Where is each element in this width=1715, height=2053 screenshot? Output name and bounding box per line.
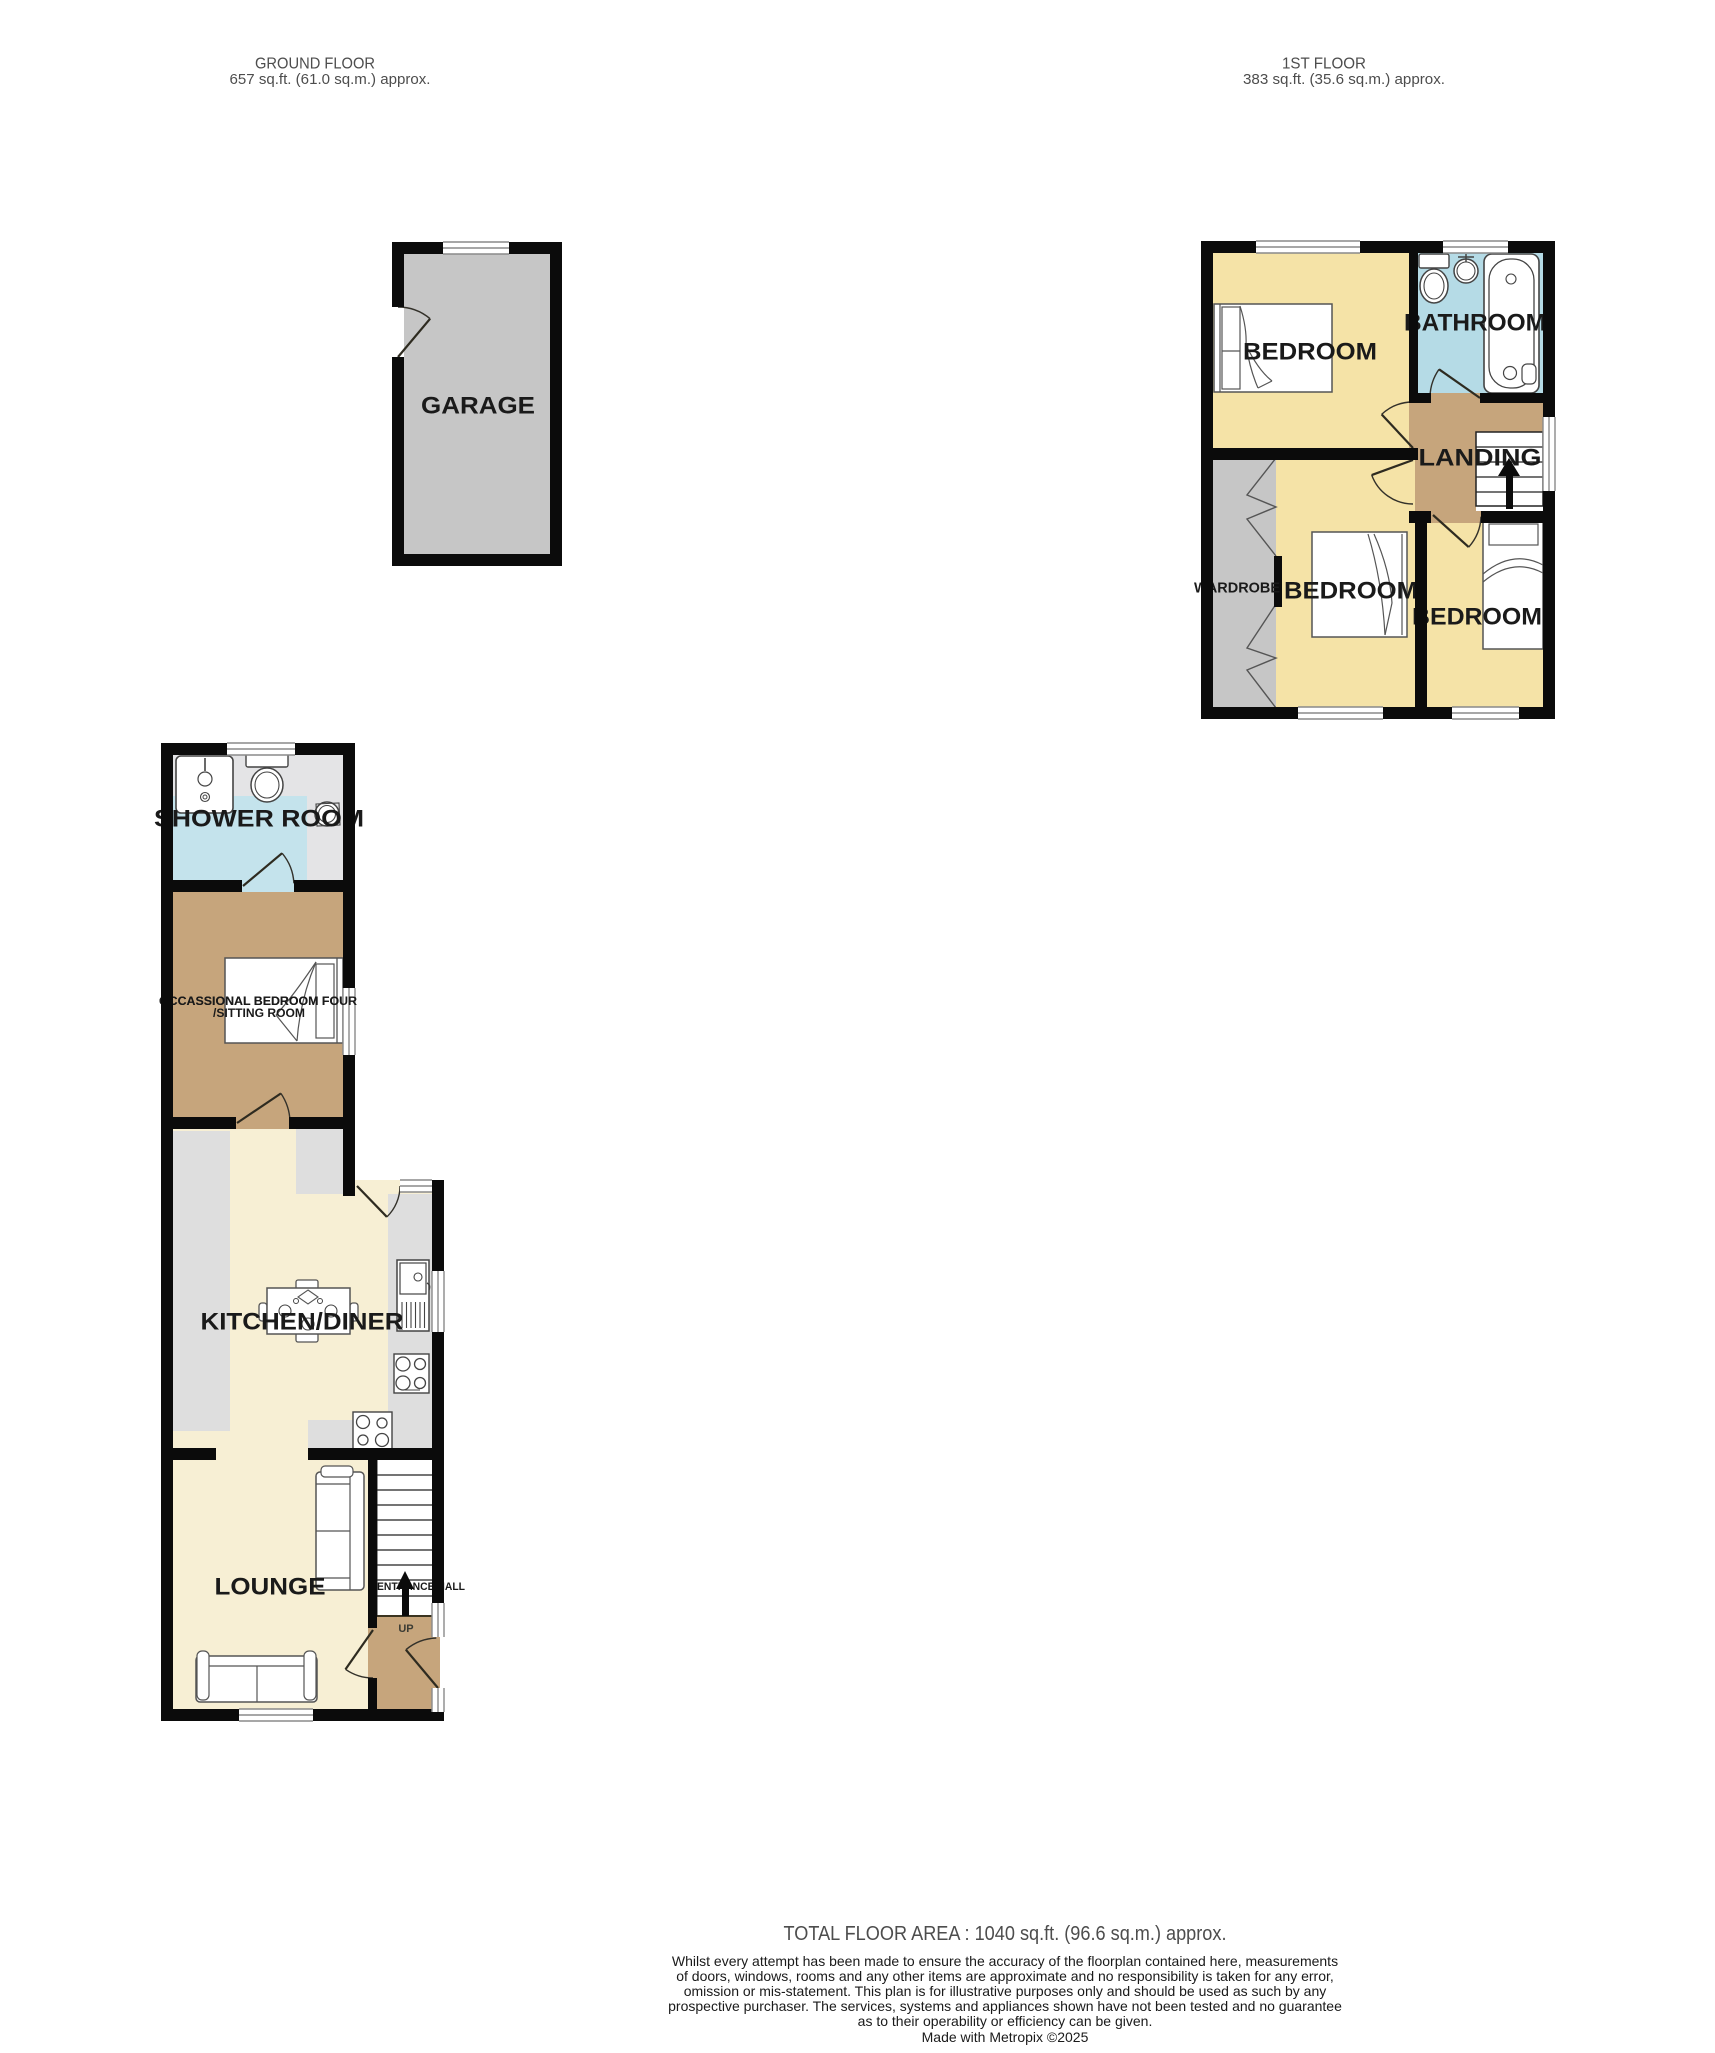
svg-text:Whilst every attempt has been: Whilst every attempt has been made to en… <box>672 1953 1338 1969</box>
svg-text:of doors, windows, rooms and a: of doors, windows, rooms and any other i… <box>676 1968 1334 1984</box>
svg-text:/SITTING ROOM: /SITTING ROOM <box>213 1006 305 1020</box>
svg-text:prospective purchaser. The ser: prospective purchaser. The services, sys… <box>668 1998 1342 2014</box>
svg-text:GROUND FLOOR: GROUND FLOOR <box>255 56 375 73</box>
svg-text:BEDROOM: BEDROOM <box>1243 339 1377 366</box>
svg-text:omission or mis-statement. Thi: omission or mis-statement. This plan is … <box>684 1983 1327 1999</box>
svg-text:GARAGE: GARAGE <box>421 393 535 420</box>
svg-text:OCCASSIONAL BEDROOM FOUR: OCCASSIONAL BEDROOM FOUR <box>159 994 357 1008</box>
svg-text:SHOWER ROOM: SHOWER ROOM <box>154 806 364 833</box>
svg-text:BATHROOM: BATHROOM <box>1404 310 1546 337</box>
svg-text:LANDING: LANDING <box>1419 445 1542 472</box>
svg-text:LOUNGE: LOUNGE <box>215 1574 326 1601</box>
svg-text:TOTAL FLOOR AREA : 1040 sq.ft.: TOTAL FLOOR AREA : 1040 sq.ft. (96.6 sq.… <box>784 1923 1227 1945</box>
svg-text:Made with Metropix ©2025: Made with Metropix ©2025 <box>922 2029 1089 2045</box>
svg-text:383 sq.ft. (35.6 sq.m.) approx: 383 sq.ft. (35.6 sq.m.) approx. <box>1243 72 1445 88</box>
svg-text:BEDROOM: BEDROOM <box>1284 578 1418 605</box>
svg-text:ENTRANCE HALL: ENTRANCE HALL <box>377 1581 465 1593</box>
svg-text:UP: UP <box>398 1623 413 1635</box>
svg-text:as to their operability or eff: as to their operability or efficiency ca… <box>858 2013 1153 2029</box>
svg-text:BEDROOM: BEDROOM <box>1412 604 1542 631</box>
svg-text:1ST FLOOR: 1ST FLOOR <box>1282 56 1366 73</box>
svg-text:KITCHEN/DINER: KITCHEN/DINER <box>201 1309 404 1336</box>
svg-text:657 sq.ft. (61.0 sq.m.) approx: 657 sq.ft. (61.0 sq.m.) approx. <box>230 72 431 88</box>
